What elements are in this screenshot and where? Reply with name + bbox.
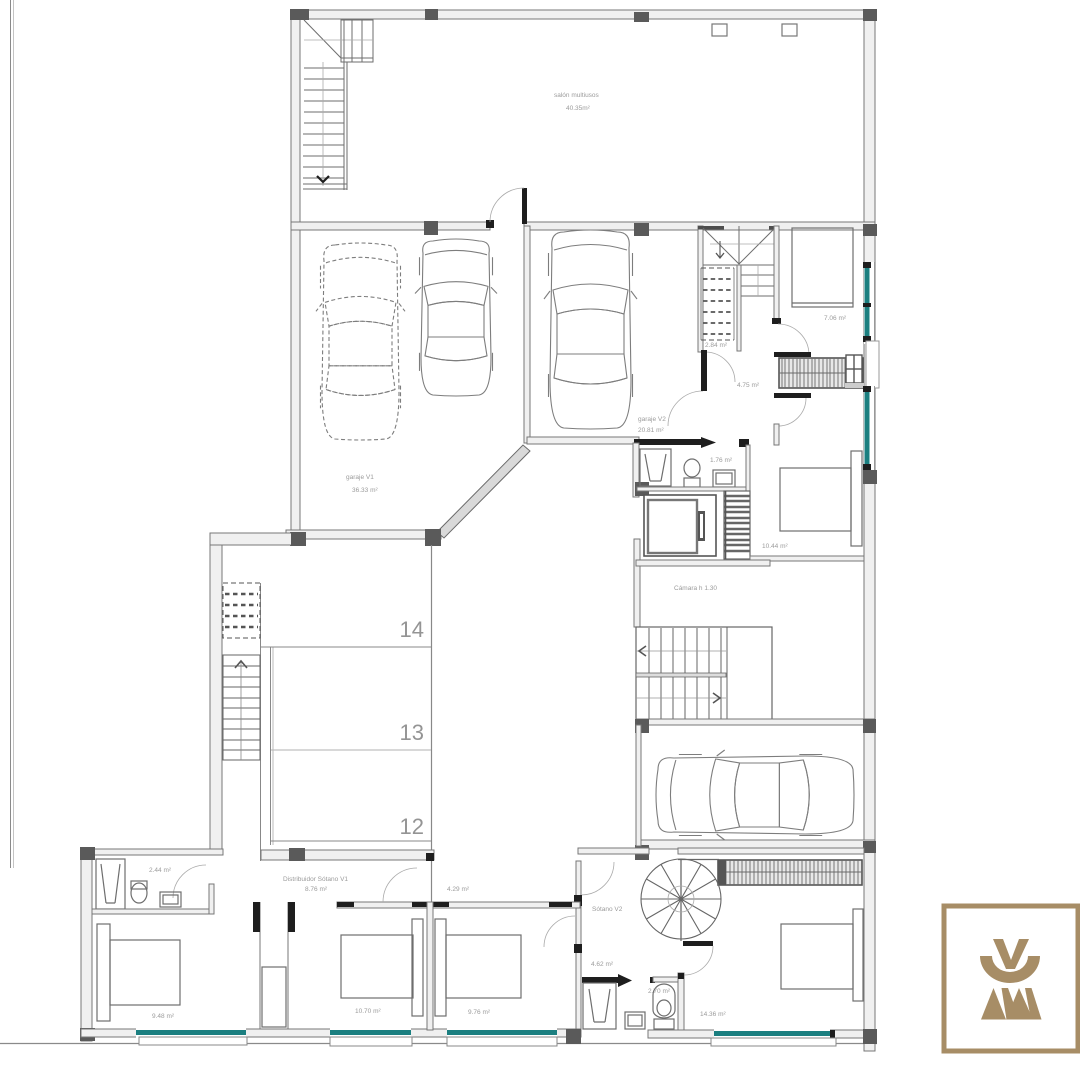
svg-text:1.76 m²: 1.76 m² bbox=[710, 457, 733, 464]
svg-text:salón multiusos: salón multiusos bbox=[554, 92, 600, 99]
svg-text:14.36 m²: 14.36 m² bbox=[700, 1011, 726, 1018]
svg-text:4.75 m²: 4.75 m² bbox=[737, 382, 760, 389]
svg-text:10.44 m²: 10.44 m² bbox=[762, 543, 788, 550]
svg-text:2.70 m²: 2.70 m² bbox=[648, 988, 671, 995]
svg-text:40.35m²: 40.35m² bbox=[566, 105, 591, 112]
svg-text:Cámara h 1.30: Cámara h 1.30 bbox=[674, 585, 717, 592]
svg-text:14: 14 bbox=[400, 617, 424, 642]
svg-text:4.29 m²: 4.29 m² bbox=[447, 886, 470, 893]
svg-text:garaje V2: garaje V2 bbox=[638, 416, 666, 423]
svg-text:2.84 m²: 2.84 m² bbox=[705, 342, 728, 349]
svg-text:13: 13 bbox=[400, 720, 424, 745]
svg-text:12: 12 bbox=[400, 814, 424, 839]
svg-text:36.33 m²: 36.33 m² bbox=[352, 487, 378, 494]
svg-text:7.06 m²: 7.06 m² bbox=[824, 315, 847, 322]
svg-text:2.44 m²: 2.44 m² bbox=[149, 867, 172, 874]
svg-text:Distribuidor Sótano V1: Distribuidor Sótano V1 bbox=[283, 876, 348, 883]
svg-text:8.76 m²: 8.76 m² bbox=[305, 886, 328, 893]
svg-text:4.62 m²: 4.62 m² bbox=[591, 961, 614, 968]
svg-text:Sótano V2: Sótano V2 bbox=[592, 906, 623, 913]
svg-text:garaje V1: garaje V1 bbox=[346, 474, 374, 481]
svg-text:9.76 m²: 9.76 m² bbox=[468, 1009, 491, 1016]
svg-text:20.81 m²: 20.81 m² bbox=[638, 427, 664, 434]
svg-text:10.70 m²: 10.70 m² bbox=[355, 1008, 381, 1015]
svg-text:9.48 m²: 9.48 m² bbox=[152, 1013, 175, 1020]
